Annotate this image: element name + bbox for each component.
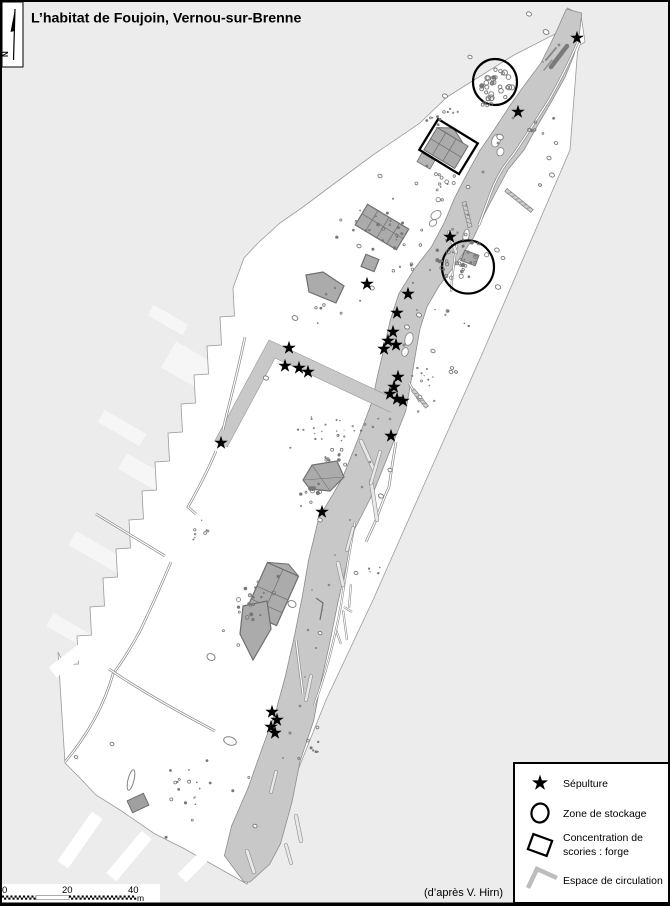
svg-text:20: 20 (62, 885, 73, 896)
svg-text:Espace de circulation: Espace de circulation (563, 875, 663, 887)
svg-text:m: m (137, 893, 144, 903)
svg-text:0: 0 (2, 885, 7, 896)
svg-text:scories : forge: scories : forge (563, 846, 629, 858)
svg-text:L’habitat de Foujoin, Vernou-s: L’habitat de Foujoin, Vernou-sur-Brenne (31, 11, 301, 27)
svg-text:Sépulture: Sépulture (563, 778, 608, 790)
svg-text:Concentration de: Concentration de (563, 832, 643, 844)
svg-text:Zone de stockage: Zone de stockage (563, 808, 647, 820)
svg-text:N: N (1, 51, 10, 57)
svg-text:(d’après V. Hirn): (d’après V. Hirn) (424, 887, 503, 899)
